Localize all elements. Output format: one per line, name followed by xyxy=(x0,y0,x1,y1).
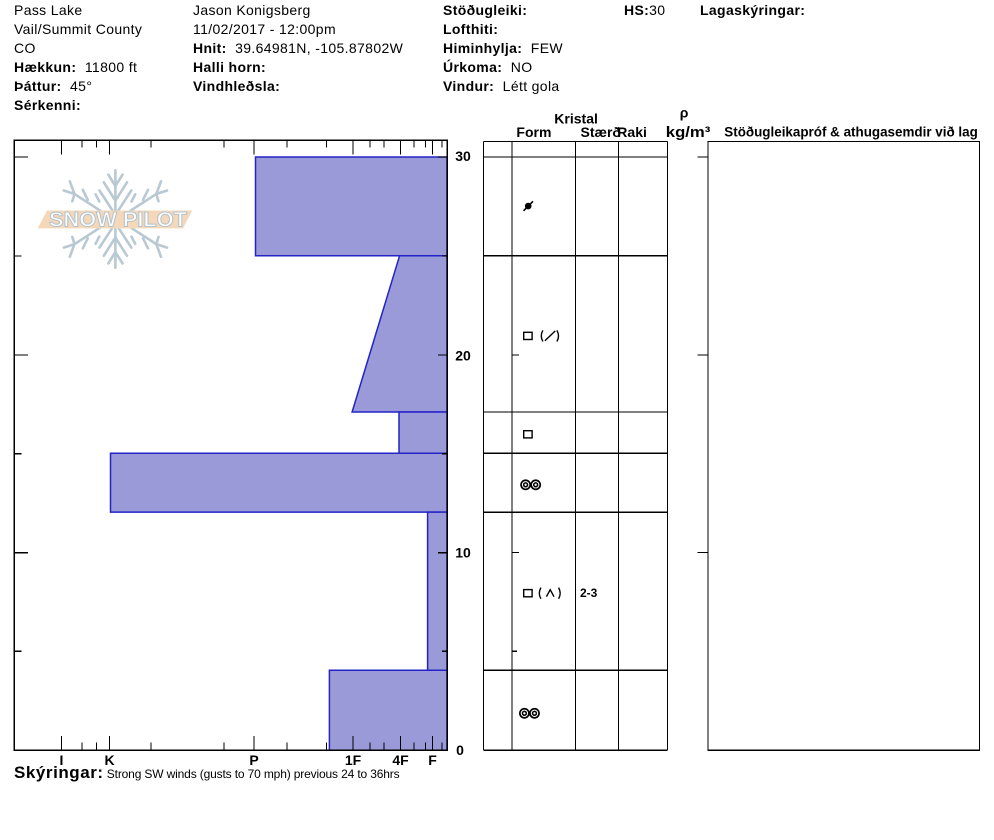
svg-text:Raki: Raki xyxy=(617,124,647,140)
svg-text:4F: 4F xyxy=(392,752,409,768)
svg-text:30: 30 xyxy=(455,148,471,164)
svg-text:K: K xyxy=(104,752,114,768)
svg-text:1F: 1F xyxy=(345,752,362,768)
svg-text:ρ: ρ xyxy=(680,105,689,121)
svg-text:Stærð: Stærð xyxy=(581,124,621,140)
svg-text:I: I xyxy=(60,752,64,768)
svg-text:Form: Form xyxy=(516,124,551,140)
svg-text:F: F xyxy=(428,752,437,768)
svg-text:0: 0 xyxy=(456,742,464,758)
svg-text:SNOW PILOT: SNOW PILOT xyxy=(49,208,187,231)
svg-text:10: 10 xyxy=(455,545,471,561)
svg-text:2-3: 2-3 xyxy=(580,586,598,600)
svg-text:20: 20 xyxy=(455,348,471,364)
svg-text:P: P xyxy=(249,752,258,768)
svg-text:kg/m³: kg/m³ xyxy=(666,124,711,141)
svg-text:Stöðugleikapróf & athugasemdir: Stöðugleikapróf & athugasemdir við lag xyxy=(724,124,978,140)
